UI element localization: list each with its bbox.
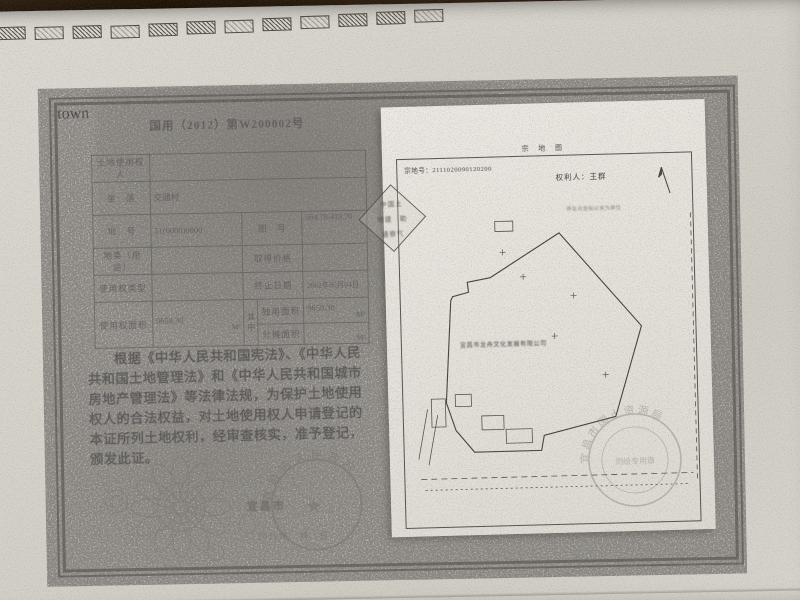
- survey-stamp-inner-text: 测绘专用章: [615, 455, 655, 466]
- field-value-location: 交通村: [150, 177, 367, 214]
- svg-text:宜昌市国土资源局: 宜昌市国土资源局: [576, 402, 667, 464]
- photocopy-paper: 国用（2012）第W200002号 ◁ town 土地使用权人 坐 落 交通村 …: [0, 0, 800, 600]
- copier-mark: [414, 9, 443, 23]
- field-value-parcel-no: 51(0000)0000: [150, 213, 242, 248]
- field-value-area: 9658.30 M²: [152, 300, 245, 348]
- field-label-right-type: 使用权类型: [94, 274, 152, 302]
- copier-mark: [0, 26, 26, 40]
- survey-stamp: 宜昌市国土资源局 测绘专用章: [575, 400, 694, 519]
- field-label-parcel-no: 地 号: [93, 214, 151, 248]
- area-unit: M²: [232, 322, 241, 331]
- copier-mark: [72, 25, 101, 39]
- building-outline: [455, 394, 471, 406]
- field-value-price: [302, 243, 367, 271]
- parcel-map-sheet: 宗 地 图 宗地号：2111020090120200 权利人：王群 界址点坐标以…: [381, 99, 716, 537]
- slope-hachure: [418, 409, 439, 466]
- building-outline: [495, 221, 513, 231]
- building-outline: [506, 429, 532, 444]
- field-label-price: 取得价格: [243, 244, 303, 272]
- field-value-sole-area: 9658.30 M²: [304, 297, 369, 323]
- paper-bottom-edge: [0, 587, 800, 600]
- certificate-serial: 国用（2012）第W200002号: [149, 115, 304, 134]
- field-label-end-date: 终止日期: [243, 271, 303, 299]
- photo-of-land-certificate: 国用（2012）第W200002号 ◁ town 土地使用权人 坐 落 交通村 …: [0, 0, 800, 600]
- field-value-land-class: [151, 246, 243, 275]
- sole-area-unit: M²: [356, 309, 365, 318]
- copier-mark: [186, 21, 215, 35]
- field-label-land-class: 地类（用途）: [93, 247, 151, 275]
- field-label-area: 使用权面积: [94, 301, 153, 348]
- field-label-shared-area: 分摊面积: [258, 323, 304, 345]
- field-label-among: 其中: [244, 299, 259, 345]
- shared-area-unit: M²: [357, 332, 366, 341]
- copier-mark: [224, 20, 253, 34]
- parcel-map-frame: 宗地号：2111020090120200 权利人：王群 界址点坐标以米为单位 宜…: [396, 151, 702, 529]
- certificate-table: 土地使用权人 坐 落 交通村 地 号 51(0000)0000 图 号 564.…: [91, 150, 370, 349]
- north-arrow-icon: [658, 167, 670, 193]
- copier-mark: [376, 11, 405, 25]
- survey-stamp-arc-text: 宜昌市国土资源局: [576, 402, 667, 464]
- copier-mark: [338, 13, 367, 27]
- field-value-land-user: [149, 150, 366, 181]
- copier-mark: [300, 15, 329, 29]
- copier-mark: [148, 23, 177, 37]
- copier-registration-marks: [0, 13, 467, 45]
- diamond-registry-stamp: 中国土 地建 助 通察气: [356, 182, 428, 254]
- copier-mark: [110, 25, 139, 39]
- field-label-location: 坐 落: [92, 181, 150, 215]
- field-label-sole-area: 独用面积: [258, 298, 304, 324]
- building-outline: [482, 415, 504, 430]
- field-label-map-no: 图 号: [242, 211, 302, 245]
- survey-cross-marks: [499, 247, 608, 381]
- field-value-end-date: 2062年05月04日: [303, 270, 368, 298]
- seal-star-icon: ★: [305, 496, 323, 518]
- field-value-right-type: [152, 273, 244, 302]
- government-seal: ★ 宜昌市人民政府: [260, 448, 374, 562]
- copier-mark: [34, 26, 63, 40]
- guilloche-rosette: [102, 444, 254, 572]
- area-number: 9658.30: [156, 315, 184, 326]
- sole-area-number: 9658.30: [307, 302, 335, 313]
- field-label-land-user: 土地使用权人: [92, 154, 150, 182]
- field-value-shared-area: M²: [304, 322, 369, 344]
- building-outline: [431, 399, 446, 427]
- copier-mark: [262, 17, 291, 31]
